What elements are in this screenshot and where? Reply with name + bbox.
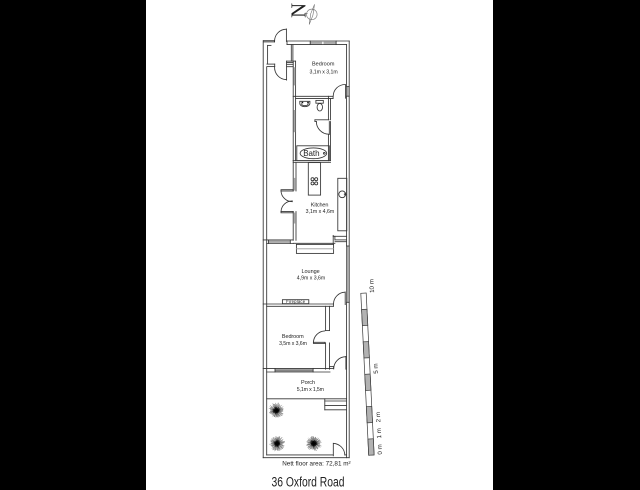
svg-text:10 m: 10 m: [368, 279, 376, 293]
svg-text:3,5m x 3,6m: 3,5m x 3,6m: [279, 341, 307, 347]
svg-text:Fireplace: Fireplace: [286, 299, 306, 304]
svg-text:Lounge: Lounge: [302, 269, 320, 275]
svg-text:Bedroom: Bedroom: [312, 62, 335, 68]
svg-text:Kitchen: Kitchen: [311, 203, 329, 209]
svg-text:3,1m x 4,6m: 3,1m x 4,6m: [306, 209, 335, 215]
svg-text:Bedroom: Bedroom: [282, 334, 304, 340]
svg-text:3,1m x 3,1m: 3,1m x 3,1m: [310, 69, 338, 75]
svg-text:5,1m x 1,5m: 5,1m x 1,5m: [297, 387, 324, 393]
svg-text:Bath: Bath: [303, 149, 319, 158]
svg-text:1 m: 1 m: [376, 428, 383, 439]
svg-text:2 m: 2 m: [375, 412, 382, 423]
svg-text:5 m: 5 m: [373, 363, 380, 374]
svg-text:Porch: Porch: [301, 380, 315, 386]
svg-text:0 m: 0 m: [377, 444, 384, 455]
svg-text:4,9m x 3,6m: 4,9m x 3,6m: [297, 275, 326, 281]
svg-text:36 Oxford Road: 36 Oxford Road: [272, 474, 345, 489]
svg-text:Nett floor area: 72,81 m²: Nett floor area: 72,81 m²: [282, 460, 350, 467]
